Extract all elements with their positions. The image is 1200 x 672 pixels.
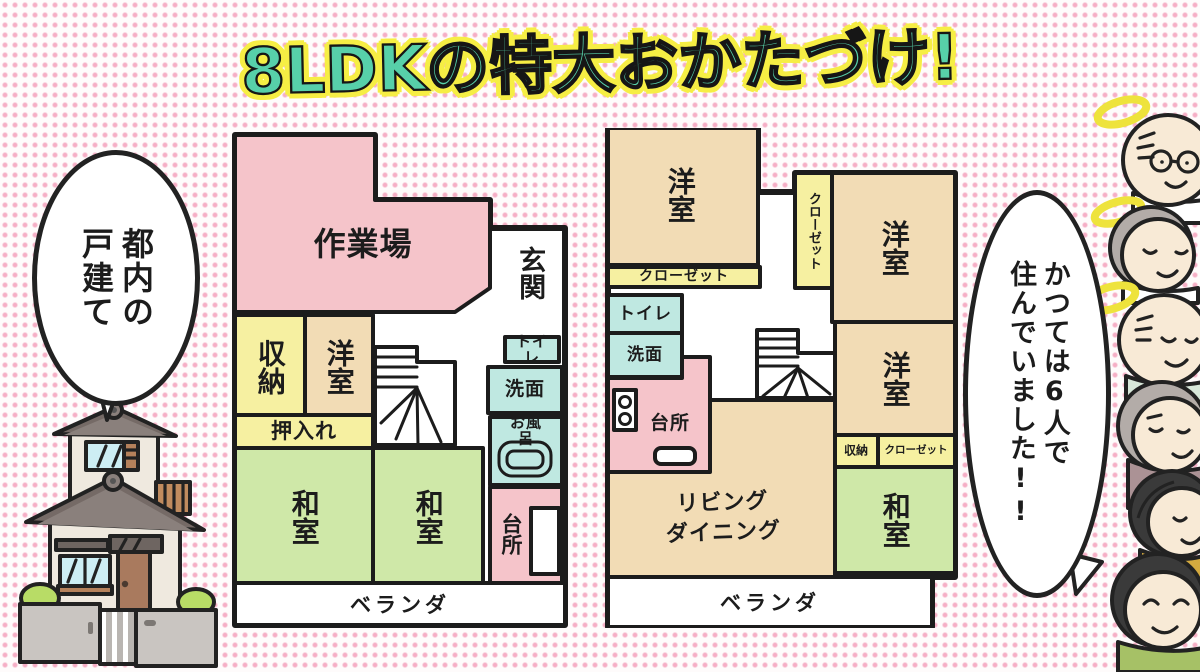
room-label-entrance: 玄関	[515, 246, 543, 300]
house-illustration	[18, 402, 228, 672]
room-label-japanese-b: 和室	[413, 489, 442, 545]
right-speech-bubble: かつては6人で 住んでいました!!	[963, 190, 1111, 598]
floorplan-1f: 作業場 玄関 収納 洋室 押入れ トイレ 洗面 お風呂 台所 和室 和室 ベラン…	[228, 130, 570, 628]
room-label-toilet-2f: トイレ	[618, 306, 672, 324]
stove-icon	[614, 390, 636, 430]
left-speech-bubble: 都内の 戸建て	[32, 150, 200, 406]
room-label-bath: お風呂	[504, 415, 548, 447]
father-face	[1112, 554, 1200, 672]
illustration-page: 8LDKの特大おかたづけ! 都内の 戸建て	[0, 0, 1200, 672]
room-label-japanese-a: 和室	[289, 489, 318, 545]
closet-wide-label: クローゼット	[639, 270, 729, 285]
room-label-japanese-2f: 和室	[880, 492, 909, 548]
left-bubble-text: 都内の 戸建て	[76, 227, 156, 329]
house-fence	[20, 604, 216, 666]
room-label-western-a: 洋室	[665, 167, 694, 223]
storage-2f-label: 収納	[844, 445, 868, 458]
floorplan-2f: 洋室 クローゼット 洋室 クローゼット トイレ 洗面 台所 洋室 収納 クローゼ…	[600, 128, 958, 628]
closet-tall-label: クローゼット	[806, 192, 820, 270]
room-label-kitchen-2f: 台所	[650, 414, 690, 434]
room-label-toilet: トイレ	[513, 334, 551, 366]
room-label-veranda-2f: ベランダ	[720, 592, 820, 614]
room-workshop-shape	[235, 135, 490, 312]
room-label-washroom: 洗面	[505, 380, 545, 400]
kitchen-counter-2f-icon	[655, 448, 695, 464]
closet-small-label: クローゼット	[884, 445, 948, 456]
staircase-1f	[375, 347, 455, 445]
kitchen-counter-icon	[531, 508, 559, 574]
room-label-storage: 収納	[255, 339, 284, 395]
room-label-veranda-1f: ベランダ	[350, 594, 450, 616]
house-lower-window	[58, 556, 112, 594]
page-title: 8LDKの特大おかたづけ!	[0, 1, 1200, 117]
house-upper-window	[86, 442, 138, 470]
room-label-oshiire: 押入れ	[271, 420, 337, 442]
room-label-living-dining: リビング ダイニング	[664, 486, 781, 549]
room-label-western: 洋室	[324, 339, 353, 395]
room-label-western-b: 洋室	[879, 220, 908, 276]
room-label-workshop: 作業場	[313, 228, 412, 262]
right-bubble-text: かつては6人で 住んでいました!!	[1003, 260, 1071, 529]
room-label-washroom-2f: 洗面	[627, 347, 663, 365]
room-label-kitchen: 台所	[500, 513, 522, 555]
room-label-western-c: 洋室	[880, 351, 909, 407]
